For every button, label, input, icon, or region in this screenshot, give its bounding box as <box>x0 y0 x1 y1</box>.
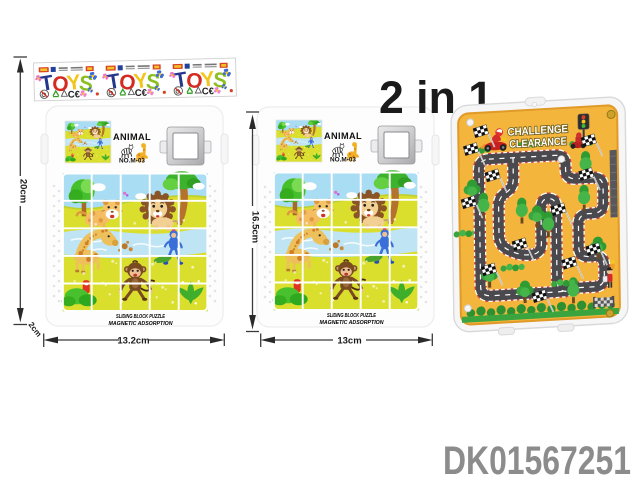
svg-text:SLIDING BLOCK PUZZLE: SLIDING BLOCK PUZZLE <box>116 314 165 320</box>
svg-text:MAGNETIC ADSORPTION: MAGNETIC ADSORPTION <box>109 321 173 327</box>
svg-text:DK01567251: DK01567251 <box>443 439 631 480</box>
svg-text:MAGNETIC ADSORPTION: MAGNETIC ADSORPTION <box>320 320 384 326</box>
svg-text:16.5cm: 16.5cm <box>250 211 261 243</box>
svg-text:13cm: 13cm <box>337 336 361 347</box>
svg-text:SLIDING BLOCK PUZZLE: SLIDING BLOCK PUZZLE <box>327 313 376 319</box>
svg-text:20cm: 20cm <box>18 179 29 203</box>
svg-text:13.2cm: 13.2cm <box>117 336 149 347</box>
